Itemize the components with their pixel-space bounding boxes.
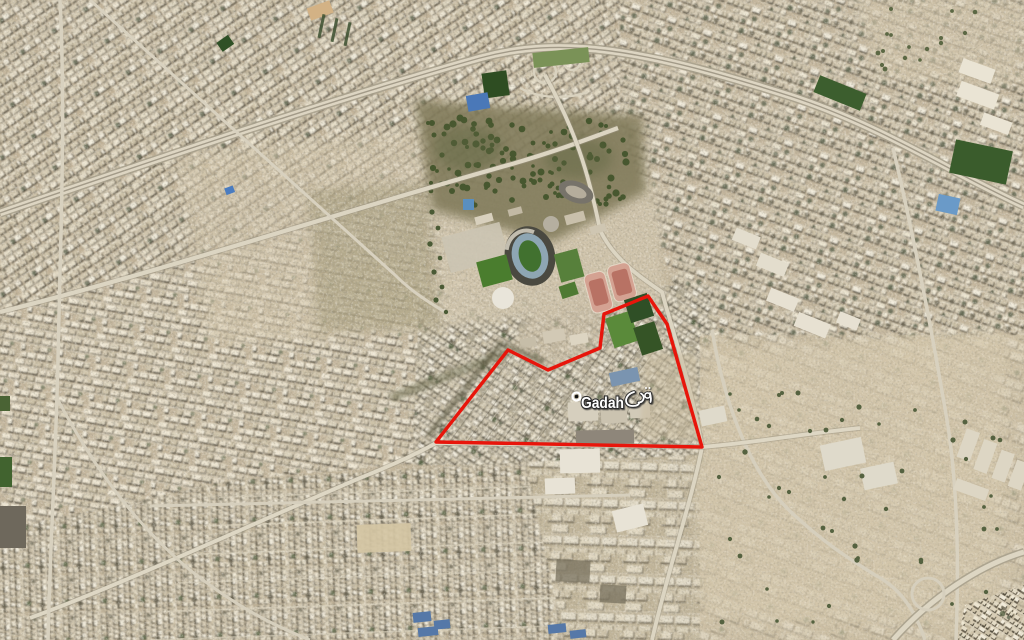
svg-text:Gadah: Gadah [581, 395, 624, 412]
